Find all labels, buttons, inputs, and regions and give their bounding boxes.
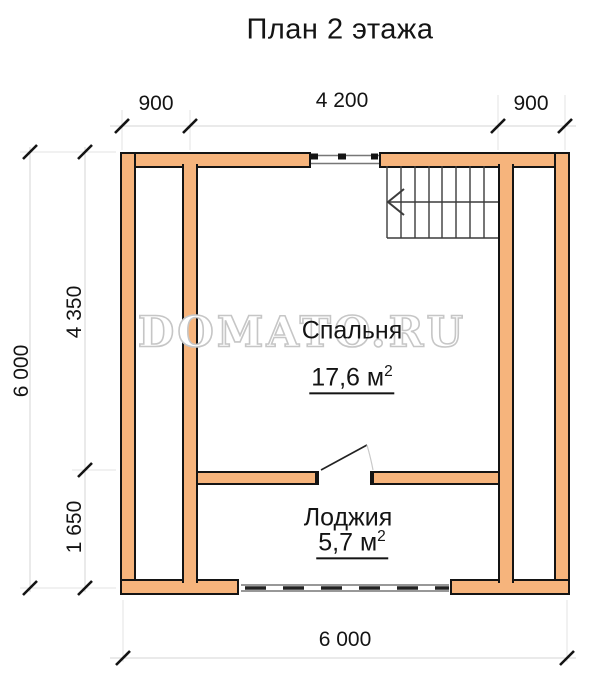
- window-bottom: [241, 585, 449, 591]
- dim-label-top-right: 900: [513, 92, 548, 116]
- dim-label-top-middle: 4 200: [316, 89, 369, 113]
- extension-lines: [20, 95, 567, 662]
- dim-label-top-left: 900: [138, 92, 173, 116]
- room-area-bedroom: 17,6 м2: [309, 363, 394, 392]
- window-top: [311, 154, 379, 164]
- dimension-ticks: [23, 119, 574, 665]
- dimension-lines: [30, 126, 576, 658]
- room-area-loggia-value: 5,7 м: [318, 529, 377, 557]
- room-area-bedroom-value: 17,6 м: [311, 364, 384, 392]
- door-swing: [321, 445, 373, 470]
- dim-label-left-upper: 4 350: [63, 286, 87, 339]
- page-title: План 2 этажа: [247, 14, 434, 47]
- dim-label-left-total: 6 000: [10, 345, 34, 398]
- room-area-loggia-sup: 2: [377, 528, 386, 545]
- floor-plan-page: План 2 этажа 900 4 200 900 6 000 4 350 1…: [0, 0, 600, 674]
- room-label-bedroom: Спальня: [302, 317, 402, 346]
- stairs: [387, 166, 498, 238]
- dim-label-bottom-total: 6 000: [319, 628, 372, 652]
- dim-label-left-lower: 1 650: [63, 501, 87, 554]
- room-area-bedroom-sup: 2: [384, 363, 393, 380]
- room-area-loggia: 5,7 м2: [316, 528, 388, 557]
